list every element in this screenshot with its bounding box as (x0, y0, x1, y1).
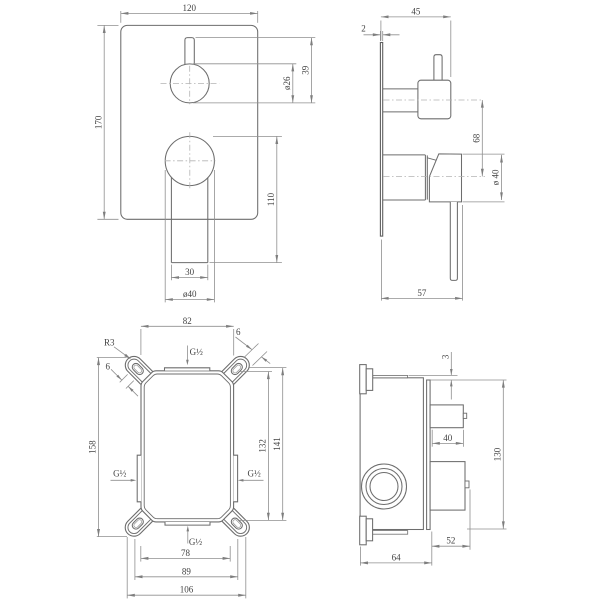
svg-text:120: 120 (182, 3, 196, 13)
svg-text:G½: G½ (190, 347, 203, 357)
svg-text:110: 110 (266, 192, 276, 206)
svg-text:170: 170 (93, 115, 103, 129)
svg-text:130: 130 (492, 447, 502, 461)
svg-text:40: 40 (443, 433, 453, 443)
svg-text:141: 141 (272, 437, 282, 451)
svg-text:2: 2 (361, 24, 366, 34)
svg-text:64: 64 (392, 552, 402, 562)
svg-text:158: 158 (88, 440, 98, 454)
svg-text:68: 68 (471, 133, 481, 143)
svg-text:3: 3 (440, 354, 450, 359)
svg-text:G½: G½ (189, 537, 202, 547)
svg-text:52: 52 (446, 536, 455, 546)
svg-text:ø 40: ø 40 (491, 169, 501, 185)
svg-text:106: 106 (180, 585, 194, 595)
svg-text:45: 45 (411, 6, 421, 16)
svg-text:30: 30 (185, 267, 195, 277)
svg-text:132: 132 (258, 439, 268, 453)
svg-text:ø26: ø26 (282, 76, 292, 90)
svg-text:39: 39 (301, 65, 311, 75)
svg-text:R3: R3 (104, 338, 115, 348)
svg-text:G½: G½ (113, 468, 126, 478)
svg-text:82: 82 (183, 316, 192, 326)
svg-text:78: 78 (181, 548, 191, 558)
svg-text:57: 57 (417, 288, 427, 298)
svg-text:ø40: ø40 (183, 289, 197, 299)
svg-text:6: 6 (236, 327, 241, 337)
svg-text:89: 89 (182, 566, 192, 576)
svg-text:6: 6 (105, 361, 110, 371)
svg-text:G½: G½ (247, 468, 260, 478)
